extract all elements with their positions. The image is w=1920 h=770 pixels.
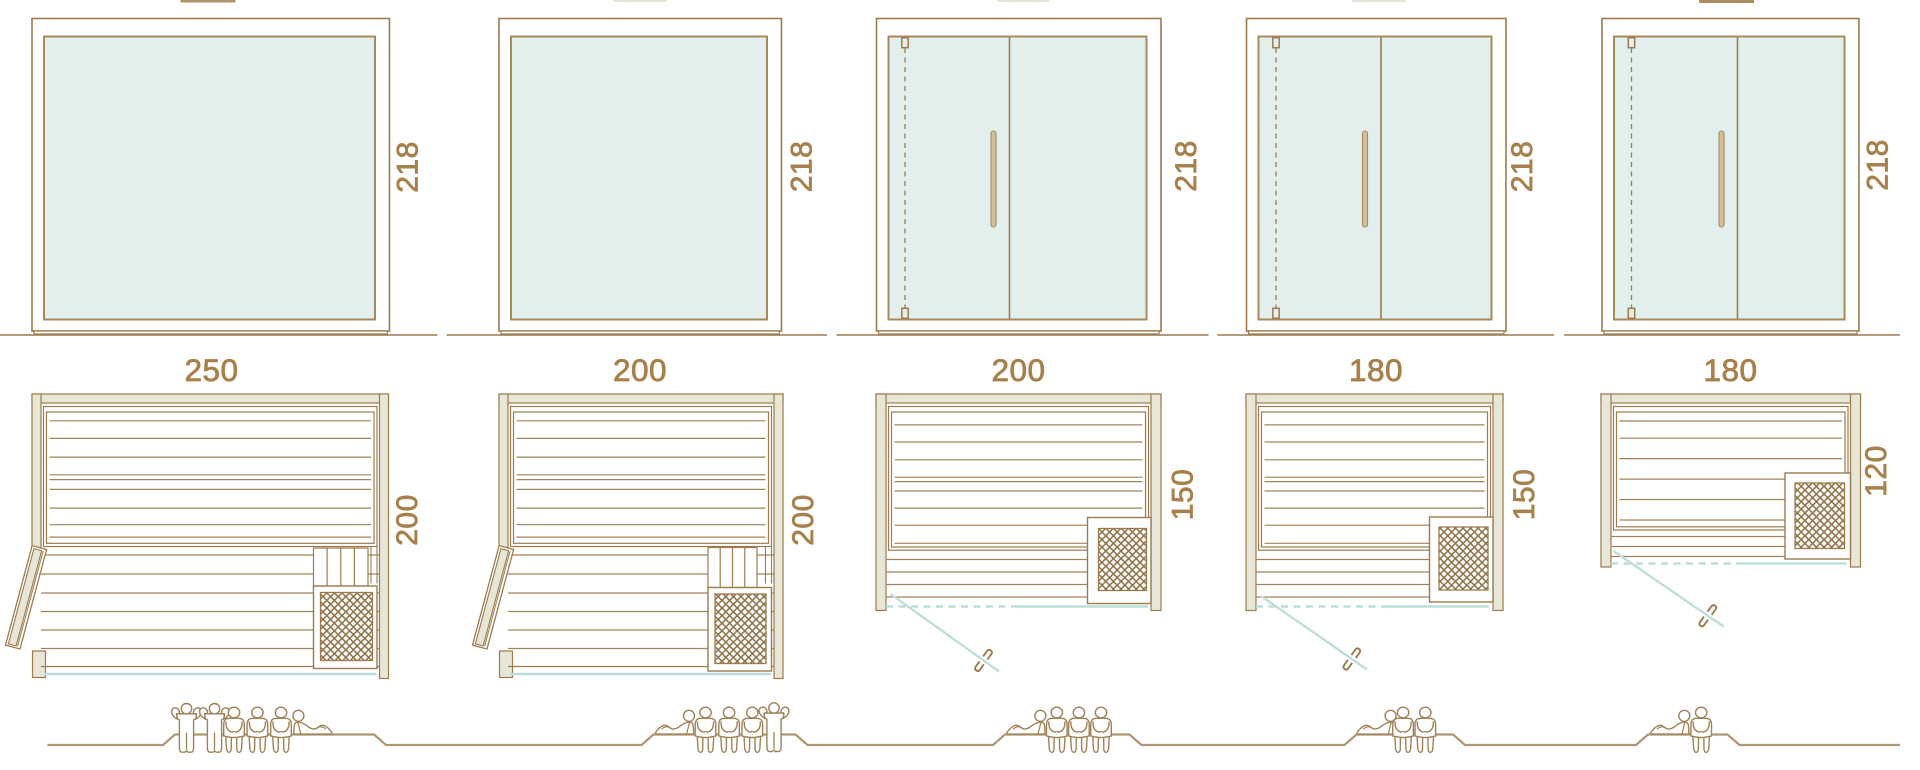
svg-text:180: 180	[1703, 352, 1757, 388]
svg-text:250: 250	[184, 352, 238, 388]
svg-text:218: 218	[1862, 139, 1895, 191]
svg-text:150: 150	[1508, 469, 1541, 521]
svg-text:180: 180	[1349, 352, 1403, 388]
svg-text:200: 200	[787, 494, 820, 546]
svg-text:218: 218	[786, 141, 819, 193]
svg-text:120: 120	[1860, 445, 1893, 497]
svg-text:218: 218	[392, 141, 425, 193]
svg-text:150: 150	[1167, 469, 1200, 521]
svg-text:200: 200	[991, 352, 1045, 388]
svg-text:200: 200	[613, 352, 667, 388]
svg-text:218: 218	[1506, 141, 1539, 193]
svg-text:218: 218	[1170, 140, 1203, 192]
svg-text:200: 200	[391, 494, 424, 546]
